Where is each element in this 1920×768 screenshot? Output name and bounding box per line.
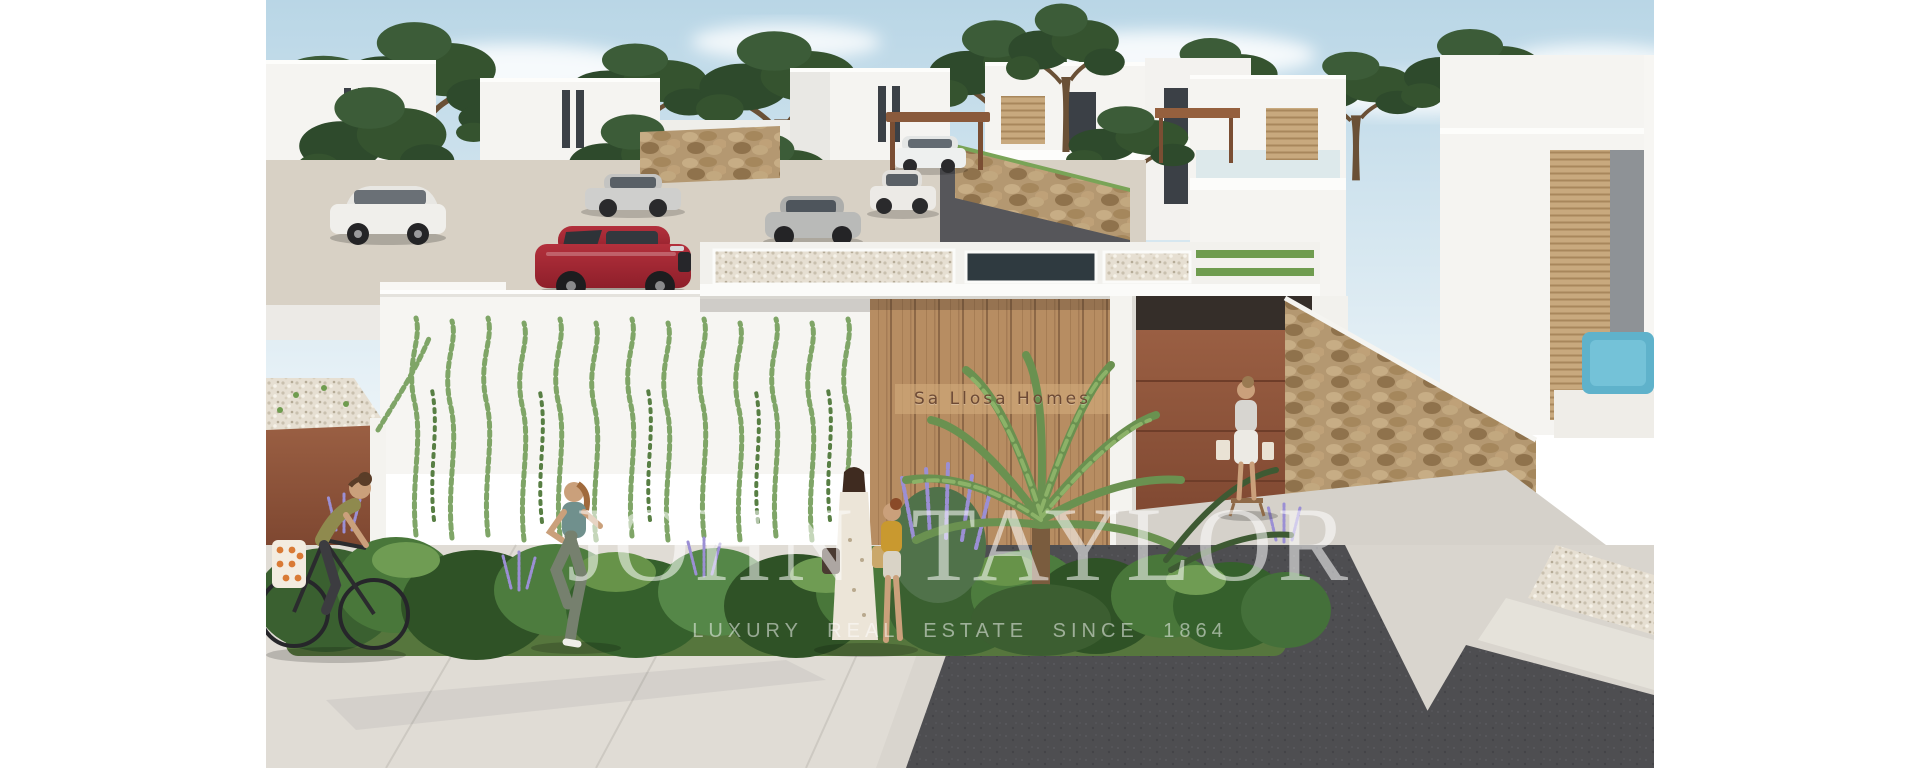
entrance-sign-text: Sa Llosa Homes — [895, 383, 1110, 415]
listing-photo: Sa Llosa Homes JOHN TAYLOR LUXURY REAL E… — [266, 0, 1654, 768]
canopy-roof — [700, 242, 1320, 299]
shopping-bag — [1216, 440, 1230, 460]
red-suv — [535, 226, 691, 301]
handbag — [822, 548, 840, 574]
white-suv-far — [892, 136, 968, 175]
shopping-bag — [1262, 442, 1274, 460]
letterboxed-page: Sa Llosa Homes JOHN TAYLOR LUXURY REAL E… — [0, 0, 1920, 768]
